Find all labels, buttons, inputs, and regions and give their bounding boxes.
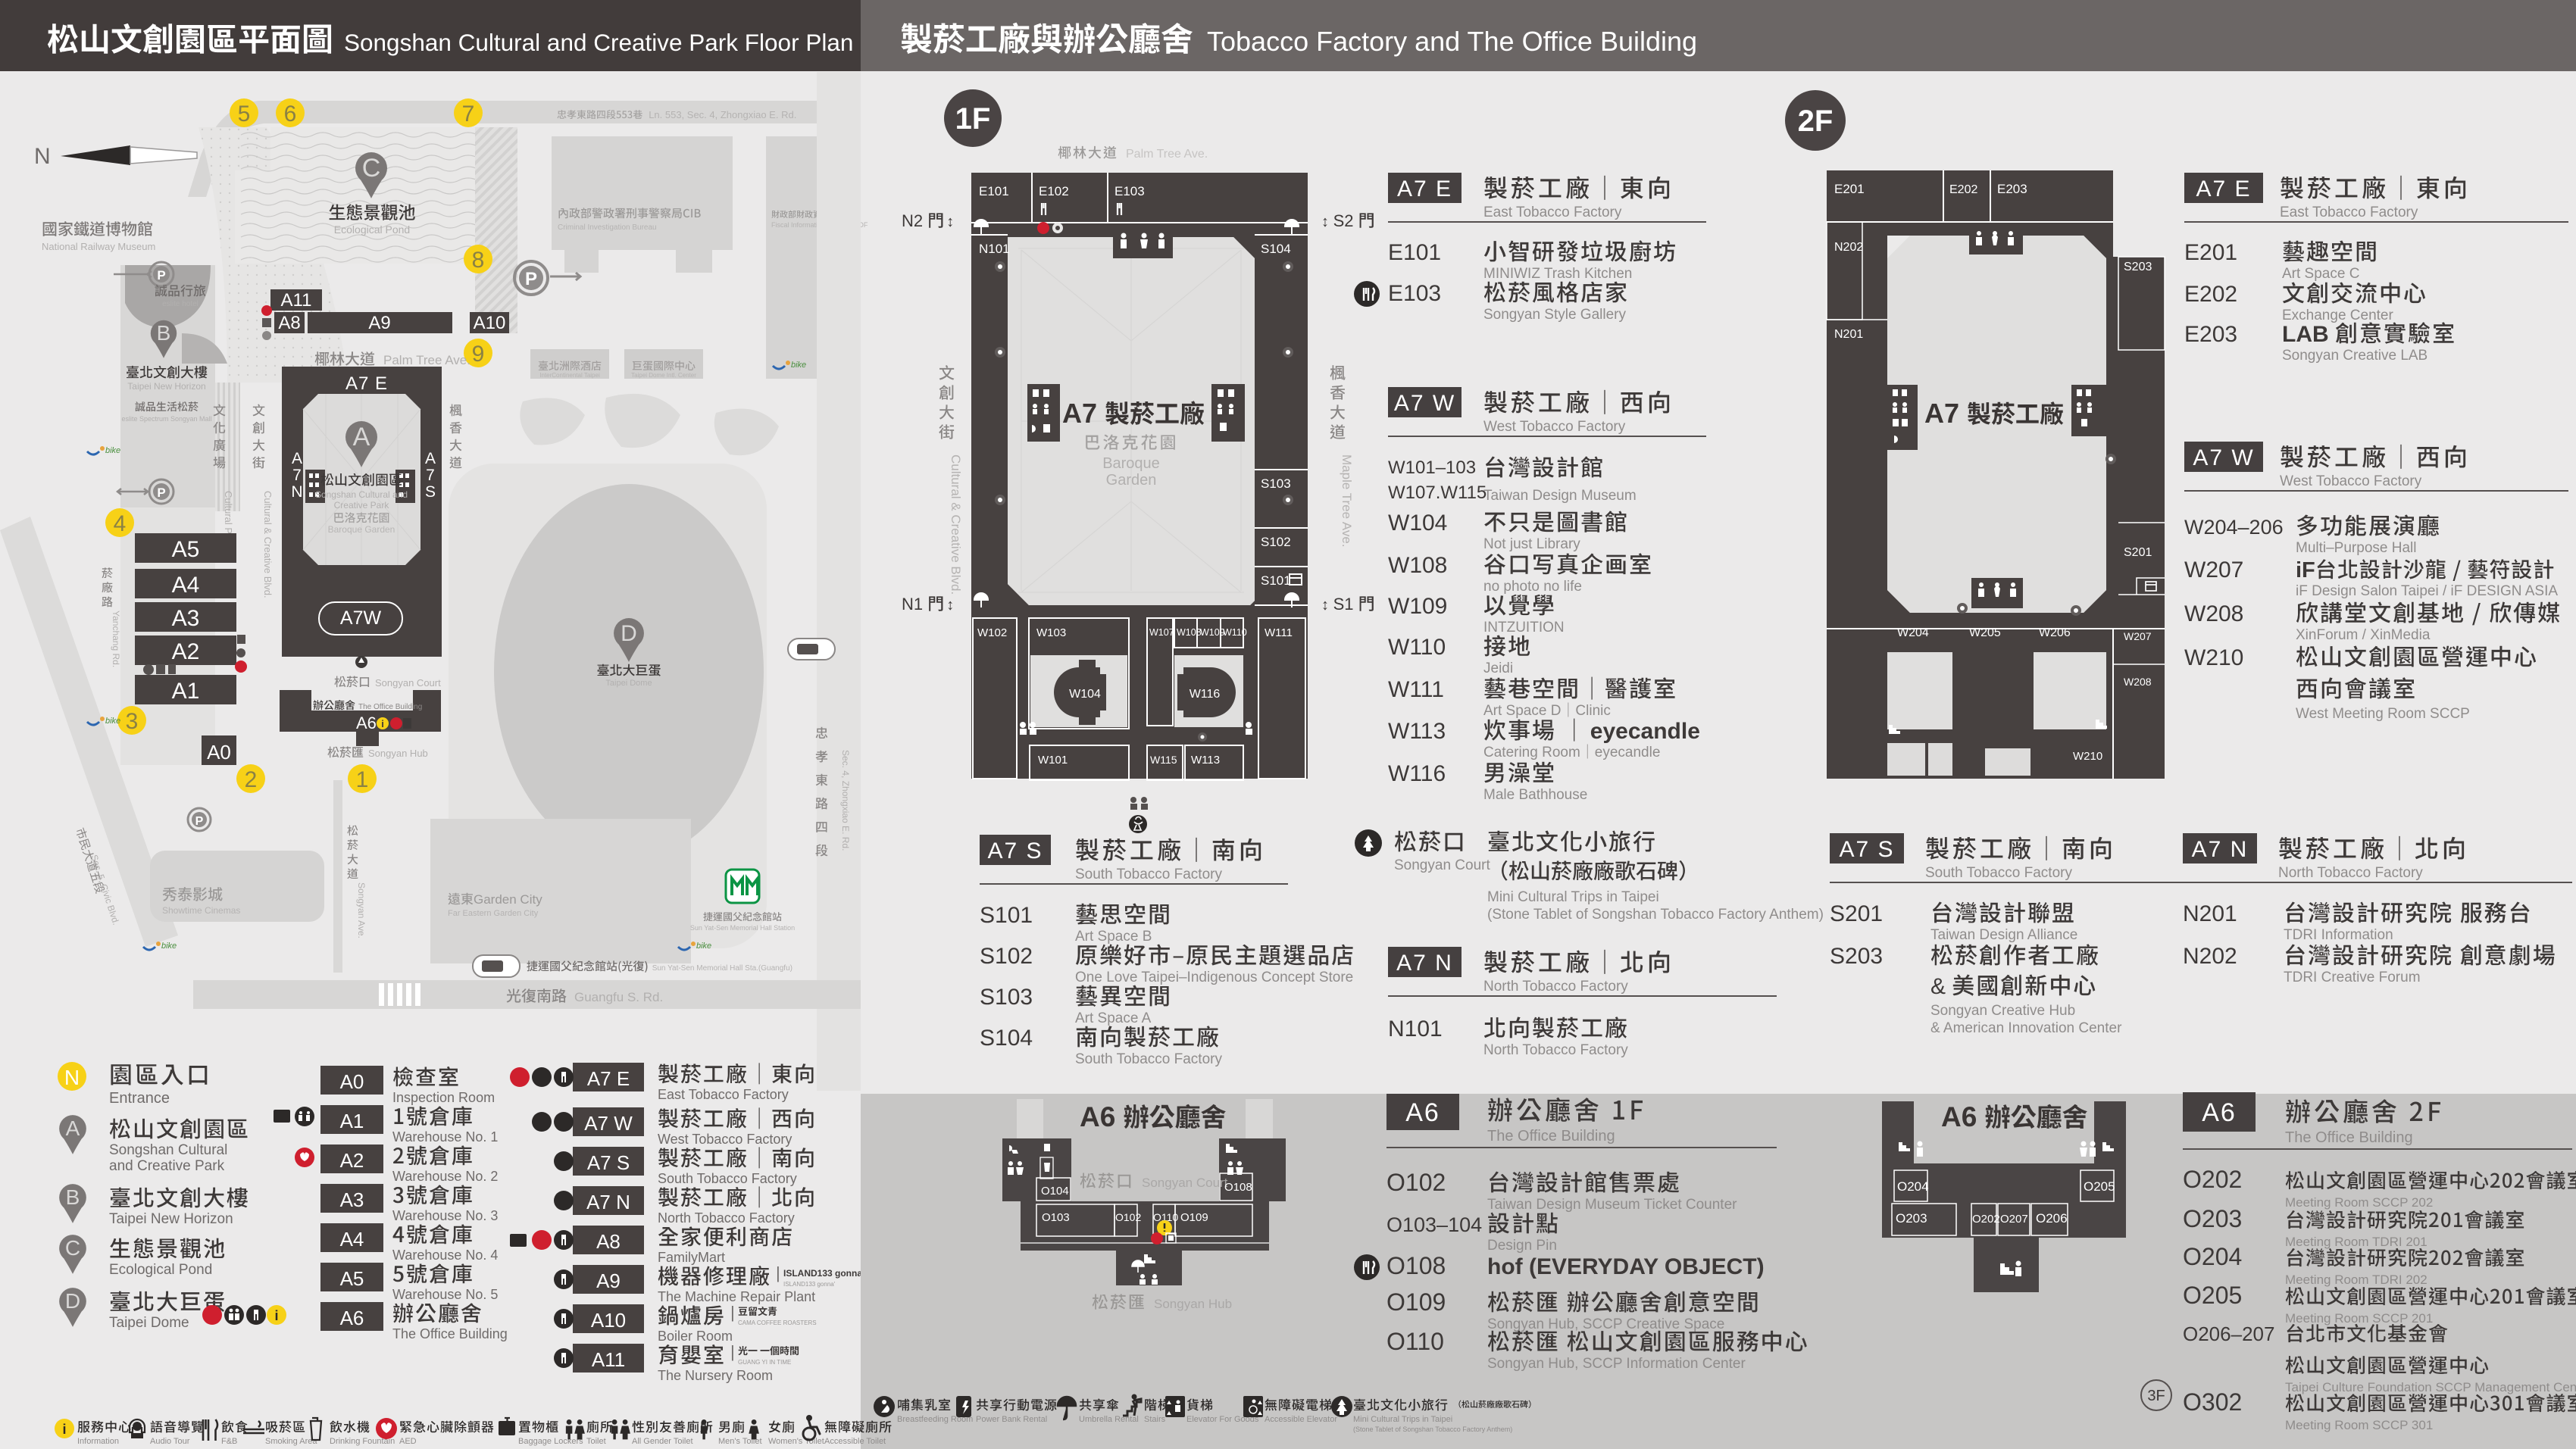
svg-text:ISLAND133 gonna': ISLAND133 gonna'	[783, 1268, 864, 1279]
svg-text:A1: A1	[172, 679, 200, 704]
svg-text:Art Space C: Art Space C	[2282, 266, 2359, 282]
svg-text:(Stone Tablet of Songshan Toba: (Stone Tablet of Songshan Tobacco Factor…	[1353, 1426, 1512, 1433]
svg-text:↕: ↕	[1321, 214, 1329, 230]
svg-text:S203: S203	[1830, 944, 1883, 969]
svg-text:Songyan Court: Songyan Court	[1394, 857, 1490, 873]
svg-text:Songshan Cultural and: Songshan Cultural and	[315, 489, 408, 500]
svg-text:LAB: LAB	[2282, 322, 2329, 347]
svg-text:W103: W103	[1036, 626, 1066, 639]
svg-text:↕: ↕	[1321, 597, 1329, 614]
svg-text:2F: 2F	[1798, 105, 1834, 138]
svg-text:O108: O108	[1386, 1252, 1446, 1279]
svg-text:North Tobacco Factory: North Tobacco Factory	[1483, 979, 1628, 995]
svg-text:A6: A6	[340, 1307, 364, 1329]
svg-text:Taipei Dome Intl. Center: Taipei Dome Intl. Center	[631, 372, 696, 379]
svg-text:Not just Library: Not just Library	[1483, 536, 1580, 552]
svg-text:W210: W210	[2073, 750, 2102, 763]
svg-text:Warehouse No. 4: Warehouse No. 4	[392, 1248, 498, 1263]
svg-text:A: A	[66, 1116, 80, 1140]
svg-text:bike: bike	[791, 361, 806, 370]
svg-text:A8: A8	[278, 313, 300, 333]
svg-text:Tobacco Factory and The Office: Tobacco Factory and The Office Building	[1207, 26, 1697, 57]
svg-text:↕: ↕	[946, 597, 954, 614]
svg-text:Art Space D｜Clinic: Art Space D｜Clinic	[1483, 702, 1611, 719]
svg-text:A5: A5	[340, 1267, 364, 1290]
svg-text:S102: S102	[1261, 535, 1291, 549]
svg-text:Cultural & Creative Blvd.: Cultural & Creative Blvd.	[262, 491, 274, 598]
svg-text:A7 S: A7 S	[987, 838, 1043, 863]
svg-text:W109: W109	[1200, 627, 1225, 638]
svg-text:Baggage Lockers: Baggage Lockers	[518, 1437, 583, 1446]
svg-text:Toilet: Toilet	[586, 1437, 606, 1446]
svg-text:W207: W207	[2184, 557, 2243, 582]
svg-text:S104: S104	[980, 1026, 1033, 1051]
svg-text:A0: A0	[340, 1070, 364, 1093]
svg-text:W101: W101	[1038, 754, 1068, 767]
svg-text:i: i	[381, 718, 384, 729]
svg-text:Warehouse No. 3: Warehouse No. 3	[392, 1208, 498, 1223]
svg-text:A1: A1	[340, 1110, 364, 1132]
svg-text:North Tobacco Factory: North Tobacco Factory	[1483, 1042, 1628, 1058]
svg-text:Cultural & Creative Blvd.: Cultural & Creative Blvd.	[949, 454, 963, 595]
svg-text:no photo no life: no photo no life	[1483, 579, 1582, 595]
svg-text:The Office Building: The Office Building	[2285, 1129, 2413, 1146]
svg-text:S201: S201	[1830, 901, 1883, 926]
svg-text:A6: A6	[2202, 1098, 2237, 1127]
svg-text:Sec. 4, Zhongxiao E. Rd.: Sec. 4, Zhongxiao E. Rd.	[840, 750, 851, 851]
svg-text:Far Eastern Garden City: Far Eastern Garden City	[448, 909, 539, 918]
svg-text:S103: S103	[980, 985, 1033, 1010]
svg-text:A: A	[292, 450, 302, 467]
svg-text:1: 1	[356, 767, 369, 792]
svg-text:The Nursery Room: The Nursery Room	[658, 1368, 773, 1383]
svg-text:A3: A3	[340, 1188, 364, 1211]
svg-text:Taiwan Design Museum Ticket Co: Taiwan Design Museum Ticket Counter	[1487, 1197, 1737, 1213]
svg-text:Songyan Creative LAB: Songyan Creative LAB	[2282, 348, 2428, 364]
svg-text:O204: O204	[2183, 1243, 2242, 1270]
svg-text:Stairs: Stairs	[1144, 1415, 1166, 1424]
svg-text:2: 2	[245, 767, 258, 792]
svg-text:Songyan Creative Hub: Songyan Creative Hub	[1930, 1003, 2075, 1019]
svg-text:TDRI Creative Forum: TDRI Creative Forum	[2284, 970, 2421, 985]
svg-text:Guangfu S. Rd.: Guangfu S. Rd.	[574, 990, 663, 1004]
svg-text:O104: O104	[1041, 1185, 1069, 1198]
svg-text:N1: N1	[902, 595, 923, 614]
svg-text:W113: W113	[1388, 719, 1446, 744]
svg-text:W115: W115	[1150, 754, 1177, 766]
svg-text:S101: S101	[1261, 573, 1291, 588]
svg-text:W107: W107	[1149, 627, 1174, 638]
svg-text:P: P	[195, 815, 204, 828]
svg-text:bike: bike	[105, 446, 120, 455]
svg-text:Meeting Room SCCP 301: Meeting Room SCCP 301	[2285, 1418, 2433, 1432]
svg-text:East Tobacco Factory: East Tobacco Factory	[658, 1087, 789, 1102]
svg-text:Criminal Investigation Bureau: Criminal Investigation Bureau	[558, 223, 657, 232]
svg-text:Design Pin: Design Pin	[1487, 1238, 1557, 1254]
svg-text:Art Space A: Art Space A	[1075, 1010, 1152, 1026]
svg-text:|: |	[730, 1342, 735, 1361]
svg-text:A6: A6	[1080, 1101, 1115, 1132]
svg-text:(Stone Tablet of Songshan Toba: (Stone Tablet of Songshan Tobacco Factor…	[1487, 907, 1824, 923]
svg-text:Creative Park: Creative Park	[334, 500, 390, 511]
svg-text:E201: E201	[1834, 182, 1865, 196]
svg-text:E101: E101	[1388, 240, 1441, 265]
svg-text:A4: A4	[340, 1228, 364, 1251]
svg-text:W206: W206	[2039, 626, 2071, 639]
svg-text:North Tobacco Factory: North Tobacco Factory	[2278, 865, 2423, 881]
svg-text:South Tobacco Factory: South Tobacco Factory	[658, 1171, 797, 1186]
svg-text:|: |	[730, 1303, 735, 1322]
svg-text:West Meeting Room SCCP: West Meeting Room SCCP	[2296, 706, 2470, 722]
svg-text:Songyan Court: Songyan Court	[375, 677, 441, 689]
svg-text:A4: A4	[172, 573, 200, 598]
svg-text:7: 7	[292, 467, 302, 484]
svg-text:Meeting Room TDRI 202: Meeting Room TDRI 202	[2285, 1273, 2428, 1287]
svg-text:Ecological Pond: Ecological Pond	[334, 223, 410, 236]
svg-text:5: 5	[238, 101, 251, 126]
svg-text:S101: S101	[980, 903, 1033, 928]
svg-text:Garden: Garden	[1106, 472, 1157, 489]
svg-text:Entrance: Entrance	[109, 1090, 170, 1107]
svg-text:InterContinental Taipei: InterContinental Taipei	[539, 372, 600, 379]
svg-text:Garden City: Garden City	[474, 892, 542, 907]
svg-text:W111: W111	[1388, 677, 1444, 702]
svg-text:i: i	[274, 1308, 278, 1323]
svg-text:E203: E203	[2184, 322, 2237, 347]
svg-text:bike: bike	[105, 717, 120, 726]
svg-text:8: 8	[472, 248, 485, 273]
svg-text:Baroque Garden: Baroque Garden	[328, 524, 395, 535]
svg-text:South Tobacco Factory: South Tobacco Factory	[1925, 865, 2072, 881]
svg-text:O204: O204	[1897, 1179, 1929, 1194]
svg-text:D: D	[65, 1289, 80, 1313]
svg-text:Meeting Room SCCP 202: Meeting Room SCCP 202	[2285, 1195, 2433, 1210]
svg-text:Smoking Area: Smoking Area	[265, 1437, 317, 1446]
svg-text:N201: N201	[2183, 901, 2237, 926]
svg-text:D: D	[621, 621, 637, 646]
svg-text:A2: A2	[172, 639, 200, 664]
svg-text:Accessible Toilet: Accessible Toilet	[824, 1437, 886, 1446]
svg-text:A: A	[353, 423, 370, 451]
svg-text:Warehouse No. 2: Warehouse No. 2	[392, 1169, 498, 1184]
svg-text:Sun Yat-Sen Memorial Hall Sta.: Sun Yat-Sen Memorial Hall Sta.(Guangfu)	[652, 964, 792, 973]
svg-text:W108: W108	[1177, 627, 1202, 638]
svg-text:4: 4	[114, 511, 127, 536]
svg-text:S102: S102	[980, 944, 1033, 969]
svg-text:Meeting Room TDRI 201: Meeting Room TDRI 201	[2285, 1235, 2428, 1249]
svg-text:A7 N: A7 N	[1396, 951, 1453, 976]
svg-text:O202: O202	[1972, 1213, 2000, 1226]
svg-text:W113: W113	[1191, 754, 1220, 767]
svg-text:INTZUITION: INTZUITION	[1483, 620, 1565, 635]
svg-text:and Creative Park: and Creative Park	[109, 1158, 225, 1174]
svg-text:Maple Tree Ave.: Maple Tree Ave.	[1340, 454, 1354, 548]
svg-text:West Tobacco Factory: West Tobacco Factory	[2280, 473, 2422, 489]
svg-text:A7 W: A7 W	[1394, 391, 1455, 416]
svg-text:Warehouse No. 1: Warehouse No. 1	[392, 1129, 498, 1145]
svg-text:S1: S1	[1333, 595, 1354, 614]
svg-text:W104: W104	[1069, 688, 1101, 701]
svg-text:N202: N202	[2183, 944, 2237, 969]
svg-text:O302: O302	[2183, 1388, 2242, 1416]
svg-text:N2: N2	[902, 211, 923, 230]
svg-text:Mini Cultural Trips in Taipei: Mini Cultural Trips in Taipei	[1487, 889, 1659, 905]
svg-text:One Love Taipei–Indigenous Con: One Love Taipei–Indigenous Concept Store	[1075, 970, 1353, 985]
svg-text:E101: E101	[979, 184, 1009, 198]
svg-text:E201: E201	[2184, 240, 2237, 265]
svg-text:TDRI Information: TDRI Information	[2284, 927, 2393, 943]
svg-text:A10: A10	[474, 313, 506, 333]
svg-text:Boiler Room: Boiler Room	[658, 1329, 733, 1344]
svg-text:All Gender Toilet: All Gender Toilet	[632, 1437, 693, 1446]
svg-text:Songyan Hub: Songyan Hub	[368, 748, 428, 759]
svg-text:Jeidi: Jeidi	[1483, 660, 1513, 676]
svg-text:O110: O110	[1386, 1328, 1444, 1355]
svg-text:E102: E102	[1039, 184, 1069, 198]
svg-text:W116: W116	[1388, 761, 1446, 786]
svg-text:A7 E: A7 E	[587, 1067, 630, 1090]
svg-text:eslite hotel: eslite hotel	[162, 300, 199, 308]
svg-text:W210: W210	[2184, 645, 2243, 670]
svg-text:3: 3	[126, 709, 139, 734]
svg-text:A7 S: A7 S	[587, 1151, 630, 1174]
svg-text:O206–207: O206–207	[2183, 1323, 2274, 1345]
svg-text:Ln. 553, Sec. 4, Zhongxiao E.: Ln. 553, Sec. 4, Zhongxiao E. Rd.	[649, 109, 796, 120]
svg-text:Catering Room｜eyecandle: Catering Room｜eyecandle	[1483, 744, 1660, 760]
svg-text:O205: O205	[2183, 1282, 2242, 1309]
svg-text:Taipei Dome: Taipei Dome	[605, 679, 652, 688]
svg-text:National Railway Museum: National Railway Museum	[42, 241, 155, 252]
svg-text:FamilyMart: FamilyMart	[658, 1250, 725, 1265]
svg-text:A7 W: A7 W	[2193, 445, 2254, 470]
svg-text:W104: W104	[1388, 511, 1447, 536]
svg-text:Songyan Hub: Songyan Hub	[1154, 1297, 1232, 1311]
svg-text:AED: AED	[399, 1437, 417, 1446]
svg-text:North Tobacco Factory: North Tobacco Factory	[658, 1210, 795, 1226]
svg-text:S201: S201	[2124, 546, 2152, 559]
svg-text:1F: 1F	[955, 102, 991, 136]
svg-text:O103–104: O103–104	[1386, 1213, 1482, 1236]
svg-text:Baroque: Baroque	[1102, 455, 1160, 472]
svg-text:W110: W110	[1223, 627, 1247, 638]
svg-text:W101–103: W101–103	[1388, 457, 1476, 478]
svg-text:Women's Toilet: Women's Toilet	[768, 1437, 824, 1446]
svg-text:Meeting Room SCCP 201: Meeting Room SCCP 201	[2285, 1311, 2433, 1326]
svg-text:bike: bike	[696, 942, 711, 951]
svg-text:A7 W: A7 W	[584, 1112, 633, 1135]
svg-text:A7 E: A7 E	[2196, 176, 2251, 201]
svg-text:A0: A0	[207, 741, 231, 764]
svg-text:A9: A9	[368, 313, 390, 333]
svg-text:A7 E: A7 E	[1397, 176, 1452, 201]
svg-text:Male Bathhouse: Male Bathhouse	[1483, 787, 1587, 803]
svg-text:O109: O109	[1386, 1288, 1446, 1316]
svg-text:Power Bank Rental: Power Bank Rental	[976, 1415, 1047, 1424]
svg-text:Songshan Cultural: Songshan Cultural	[109, 1142, 227, 1158]
svg-text:East Tobacco Factory: East Tobacco Factory	[1483, 205, 1622, 220]
svg-text:O206: O206	[2036, 1211, 2068, 1226]
svg-text:eslite Spectrum Songyan Mall: eslite Spectrum Songyan Mall	[121, 415, 211, 423]
svg-text:XinForum / XinMedia: XinForum / XinMedia	[2296, 627, 2431, 643]
svg-text:N: N	[34, 144, 51, 169]
svg-text:Songyan Style Gallery: Songyan Style Gallery	[1483, 307, 1626, 323]
svg-text:P: P	[157, 486, 165, 500]
svg-text:W116: W116	[1190, 688, 1221, 701]
svg-text:|: |	[776, 1263, 780, 1282]
svg-text:E103: E103	[1388, 281, 1441, 306]
svg-text:P: P	[525, 269, 537, 289]
svg-text:W204–206: W204–206	[2184, 516, 2284, 539]
svg-text:O207: O207	[2000, 1213, 2028, 1226]
svg-text:A10: A10	[591, 1309, 626, 1332]
svg-text:Taiwan Design Alliance: Taiwan Design Alliance	[1930, 927, 2077, 943]
svg-text:GUANG YI IN TIME: GUANG YI IN TIME	[738, 1359, 791, 1366]
svg-text:W204: W204	[1897, 626, 1929, 639]
svg-text:A8: A8	[596, 1230, 621, 1253]
svg-text:W208: W208	[2184, 601, 2243, 626]
svg-text:Songyan Hub, SCCP Creative Spa: Songyan Hub, SCCP Creative Space	[1487, 1316, 1724, 1332]
svg-text:E202: E202	[1949, 183, 1977, 196]
svg-text:Taipei Dome: Taipei Dome	[109, 1315, 189, 1331]
svg-text:Multi–Purpose Hall: Multi–Purpose Hall	[2296, 540, 2416, 556]
svg-text:Palm Tree Ave.: Palm Tree Ave.	[383, 353, 470, 367]
svg-text:W102: W102	[977, 626, 1007, 639]
svg-text:West Tobacco Factory: West Tobacco Factory	[1483, 419, 1626, 435]
svg-text:Songyan Court: Songyan Court	[1142, 1176, 1228, 1190]
svg-text:Inspection Room: Inspection Room	[392, 1090, 495, 1105]
svg-text:N201: N201	[1834, 328, 1863, 341]
svg-text:Taipei New Horizon: Taipei New Horizon	[127, 381, 205, 392]
svg-text:O102: O102	[1115, 1211, 1141, 1223]
svg-text:W208: W208	[2124, 676, 2152, 688]
svg-text:hof (EVERYDAY OBJECT): hof (EVERYDAY OBJECT)	[1487, 1254, 1765, 1279]
svg-text:S203: S203	[2124, 261, 2152, 273]
svg-text:Exchange Center: Exchange Center	[2282, 308, 2393, 323]
svg-text:N101: N101	[1388, 1016, 1443, 1041]
svg-text:The Office Building: The Office Building	[392, 1326, 508, 1341]
svg-text:A7 N: A7 N	[586, 1191, 630, 1213]
svg-text:A7 E: A7 E	[345, 373, 388, 394]
svg-text:A7W: A7W	[340, 607, 382, 629]
svg-text:A11: A11	[281, 290, 312, 311]
svg-text:9: 9	[472, 342, 485, 367]
svg-text:O109: O109	[1180, 1211, 1208, 1224]
svg-text:Sun Yat-Sen Memorial Hall Stat: Sun Yat-Sen Memorial Hall Station	[690, 924, 795, 932]
svg-text:N: N	[64, 1066, 80, 1089]
svg-text:MINIWIZ Trash Kitchen: MINIWIZ Trash Kitchen	[1483, 266, 1632, 282]
svg-text:7: 7	[426, 467, 435, 484]
svg-text:O102: O102	[1386, 1169, 1446, 1196]
svg-text:O202: O202	[2183, 1166, 2242, 1193]
svg-text:W111: W111	[1265, 626, 1293, 639]
svg-text:The Office Building: The Office Building	[1487, 1128, 1615, 1145]
svg-text:Songyan Hub, SCCP Information: Songyan Hub, SCCP Information Center	[1487, 1356, 1746, 1372]
svg-text:Audio Tour: Audio Tour	[150, 1437, 190, 1446]
svg-text:Yanchang Rd.: Yanchang Rd.	[111, 611, 121, 667]
svg-text:& American Innovation Center: & American Innovation Center	[1930, 1020, 2122, 1036]
svg-text:iF Design Salon Taipei / iF DE: iF Design Salon Taipei / iF DESIGN ASIA	[2296, 583, 2558, 599]
svg-text:O103: O103	[1042, 1211, 1070, 1224]
svg-text:&: &	[1930, 974, 1946, 999]
svg-text:B: B	[66, 1185, 80, 1209]
svg-text:Accessible Elevator: Accessible Elevator	[1265, 1415, 1337, 1424]
svg-text:bike: bike	[161, 942, 177, 951]
svg-text:F&B: F&B	[221, 1437, 237, 1446]
svg-text:W108: W108	[1388, 553, 1447, 578]
svg-text:Songyan Ave.: Songyan Ave.	[356, 882, 367, 938]
svg-text:A7 N: A7 N	[2192, 837, 2249, 862]
svg-text:W107.W115: W107.W115	[1388, 482, 1487, 503]
svg-text:Warehouse No. 5: Warehouse No. 5	[392, 1287, 498, 1302]
svg-text:iF: iF	[2296, 558, 2315, 582]
svg-text:A7: A7	[1062, 398, 1097, 429]
svg-text:E202: E202	[2184, 282, 2237, 307]
svg-text:O205: O205	[2084, 1179, 2115, 1194]
svg-text:N101: N101	[979, 242, 1010, 256]
svg-text:O203: O203	[1896, 1211, 1927, 1226]
svg-text:Umbrella Rental: Umbrella Rental	[1079, 1415, 1139, 1424]
svg-text:N: N	[291, 483, 302, 501]
svg-text:W205: W205	[1969, 626, 2001, 639]
svg-text:A3: A3	[172, 606, 200, 631]
svg-text:3F: 3F	[2147, 1388, 2165, 1404]
svg-text:P: P	[157, 268, 165, 283]
svg-text:O203: O203	[2183, 1205, 2242, 1232]
svg-text:E103: E103	[1114, 184, 1145, 198]
svg-text:Art Space B: Art Space B	[1075, 929, 1152, 945]
svg-text:Taiwan Design Museum: Taiwan Design Museum	[1483, 488, 1637, 504]
svg-text:South Tobacco Factory: South Tobacco Factory	[1075, 1051, 1222, 1067]
svg-text:A5: A5	[172, 537, 200, 562]
svg-text:A9: A9	[596, 1269, 621, 1292]
svg-text:Information: Information	[77, 1437, 119, 1446]
svg-text:A7: A7	[1924, 398, 1959, 429]
svg-text:A11: A11	[592, 1348, 625, 1371]
svg-text:A: A	[425, 450, 436, 467]
svg-text:Songshan Cultural and Creative: Songshan Cultural and Creative Park Floo…	[344, 29, 853, 56]
svg-text:Taipei Culture Foundation SCCP: Taipei Culture Foundation SCCP Managemen…	[2285, 1380, 2576, 1394]
svg-text:E203: E203	[1997, 182, 2027, 196]
svg-text:Ecological Pond: Ecological Pond	[109, 1262, 212, 1278]
svg-text:East Tobacco Factory: East Tobacco Factory	[2280, 205, 2418, 220]
svg-text:Taipei New Horizon: Taipei New Horizon	[109, 1211, 233, 1227]
svg-text:eyecandle: eyecandle	[1590, 719, 1700, 744]
svg-text:Showtime Cinemas: Showtime Cinemas	[162, 905, 240, 916]
svg-text:The Office Building: The Office Building	[358, 703, 422, 711]
svg-text:6: 6	[284, 101, 297, 126]
svg-text:B: B	[157, 321, 171, 345]
svg-text:N202: N202	[1834, 241, 1863, 254]
svg-text:A7 S: A7 S	[1839, 837, 1894, 862]
svg-text:A6: A6	[1405, 1098, 1440, 1127]
svg-text:S2: S2	[1333, 211, 1354, 230]
svg-text:A6: A6	[356, 714, 377, 732]
svg-text:W109: W109	[1388, 594, 1447, 619]
svg-text:A6: A6	[1941, 1101, 1977, 1132]
svg-text:7: 7	[462, 101, 475, 126]
svg-text:i: i	[62, 1422, 66, 1437]
svg-text:S104: S104	[1261, 242, 1291, 256]
svg-text:Palm Tree Ave.: Palm Tree Ave.	[1126, 148, 1208, 161]
svg-text:O108: O108	[1224, 1181, 1252, 1194]
svg-text:A2: A2	[340, 1149, 364, 1172]
svg-text:South Tobacco Factory: South Tobacco Factory	[1075, 867, 1222, 882]
svg-text:ISLAND133 gonna': ISLAND133 gonna'	[783, 1281, 836, 1288]
svg-text:West Tobacco Factory: West Tobacco Factory	[658, 1132, 792, 1147]
svg-text:W110: W110	[1388, 635, 1446, 660]
svg-text:C: C	[65, 1236, 80, 1260]
svg-text:S103: S103	[1261, 476, 1291, 491]
